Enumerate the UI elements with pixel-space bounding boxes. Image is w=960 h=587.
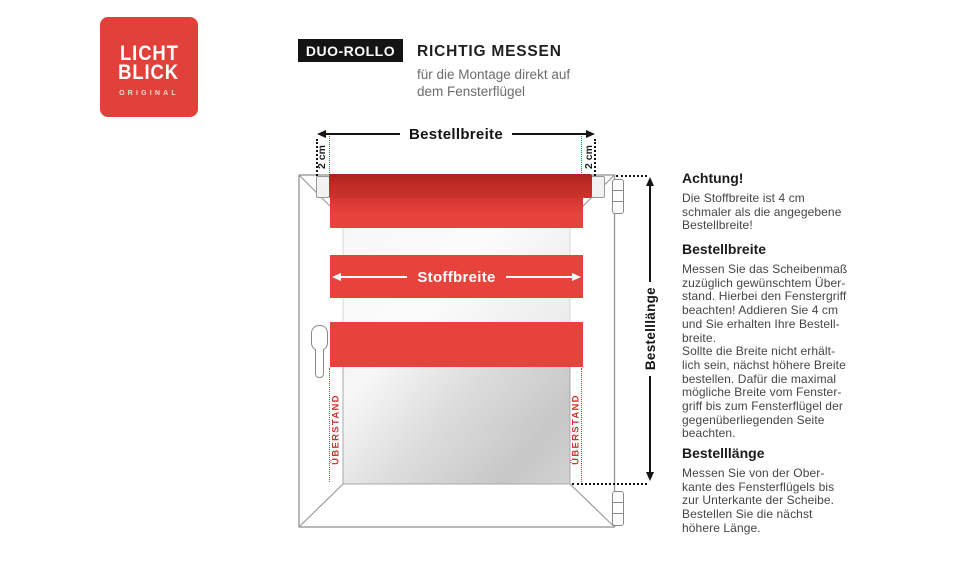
bestellbreite-arrow-label: Bestellbreite bbox=[400, 126, 512, 143]
window-handle-grip bbox=[315, 349, 324, 378]
stoffbreite-arrow: Stoffbreite bbox=[332, 269, 581, 285]
bestelllaenge-arrow: Bestelllänge bbox=[642, 177, 658, 481]
section-body: Die Stoffbreite ist 4 cm schmaler als di… bbox=[682, 192, 919, 233]
page-title: RICHTIG MESSEN bbox=[417, 43, 562, 61]
product-badge: DUO-ROLLO bbox=[298, 39, 403, 62]
ueberstand-label-right: ÜBERSTAND bbox=[571, 394, 582, 466]
section-achtung: Achtung! Die Stoffbreite ist 4 cm schmal… bbox=[682, 170, 919, 233]
roller-tube bbox=[329, 174, 592, 198]
section-body: Messen Sie von der Ober- kante des Fenst… bbox=[682, 467, 919, 536]
logo-text-blick: BLICK bbox=[119, 63, 180, 82]
section-heading: Bestellbreite bbox=[682, 241, 919, 257]
roller-bracket-left bbox=[316, 176, 330, 198]
fabric-stripe-top bbox=[330, 198, 583, 228]
window-handle-knob bbox=[311, 325, 328, 351]
transparent-stripe bbox=[330, 298, 583, 322]
arrowhead-down-icon bbox=[646, 472, 654, 481]
page-subtitle: für die Montage direkt auf dem Fensterfl… bbox=[417, 66, 570, 100]
infographic-page: LICHT BLICK ORIGINAL DUO-ROLLO RICHTIG M… bbox=[0, 0, 960, 587]
bestellbreite-arrow: Bestellbreite bbox=[317, 126, 595, 142]
arrowhead-left-icon bbox=[332, 273, 341, 281]
arrowhead-up-icon bbox=[646, 177, 654, 186]
section-body: Messen Sie das Scheibenmaß zuzüglich gew… bbox=[682, 263, 919, 441]
two-cm-label-left: 2 cm bbox=[316, 137, 328, 177]
hinge-bottom bbox=[612, 491, 624, 526]
logo-text-original: ORIGINAL bbox=[119, 90, 179, 97]
section-bestelllaenge: Bestelllänge Messen Sie von der Ober- ka… bbox=[682, 445, 919, 536]
section-heading: Bestelllänge bbox=[682, 445, 919, 461]
lichtblick-logo: LICHT BLICK ORIGINAL bbox=[100, 17, 198, 117]
bestelllaenge-arrow-label: Bestelllänge bbox=[643, 282, 658, 375]
length-connector-bottom bbox=[572, 483, 647, 485]
stoffbreite-arrow-label: Stoffbreite bbox=[407, 269, 505, 286]
roller-bracket-right bbox=[591, 176, 605, 198]
section-heading: Achtung! bbox=[682, 170, 919, 186]
section-bestellbreite: Bestellbreite Messen Sie das Scheibenmaß… bbox=[682, 241, 919, 441]
ueberstand-guide-left bbox=[329, 368, 330, 482]
arrowhead-right-icon bbox=[572, 273, 581, 281]
hinge-top bbox=[612, 179, 624, 214]
ueberstand-label-left: ÜBERSTAND bbox=[331, 394, 342, 466]
fabric-stripe-bottom bbox=[330, 322, 583, 367]
two-cm-label-right: 2 cm bbox=[583, 137, 595, 177]
transparent-stripe bbox=[330, 228, 583, 255]
length-connector-top bbox=[616, 175, 647, 177]
